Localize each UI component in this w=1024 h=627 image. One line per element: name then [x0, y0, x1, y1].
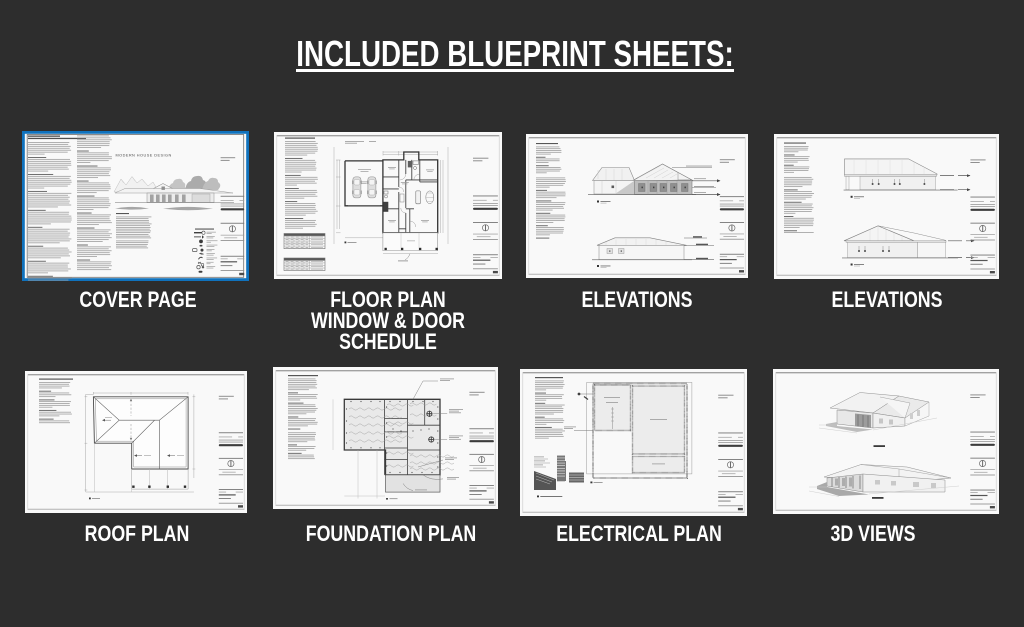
svg-text:MODERN HOUSE DESIGN: MODERN HOUSE DESIGN [116, 154, 172, 158]
